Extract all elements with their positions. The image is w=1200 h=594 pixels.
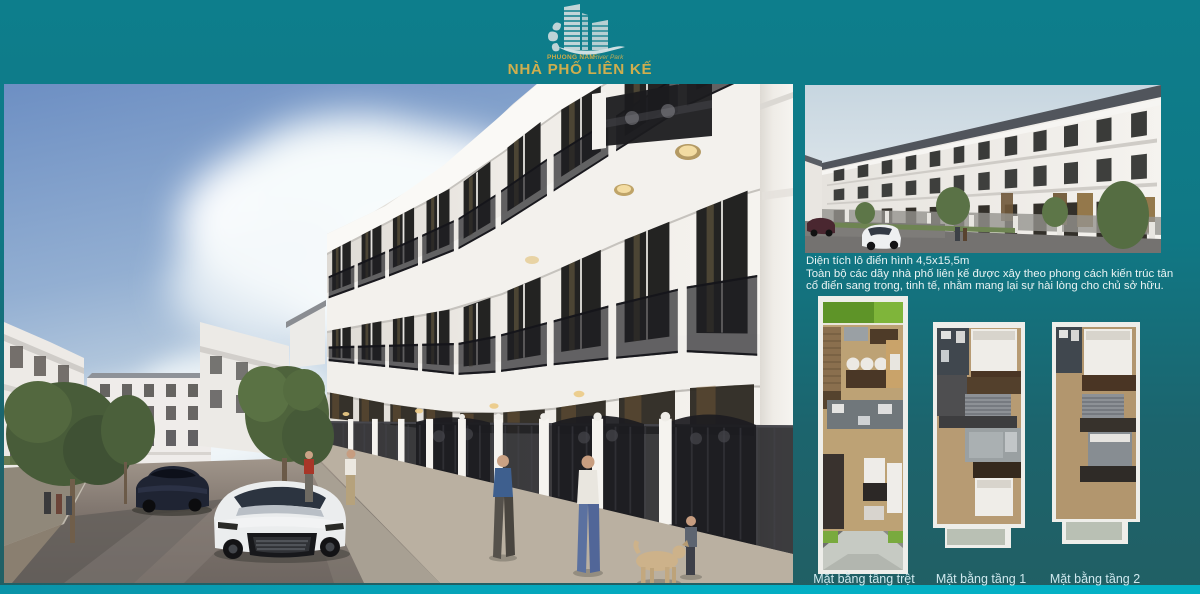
svg-text:PHUONG NAM: PHUONG NAM [547, 54, 595, 60]
svg-text:River Park: River Park [593, 54, 624, 60]
